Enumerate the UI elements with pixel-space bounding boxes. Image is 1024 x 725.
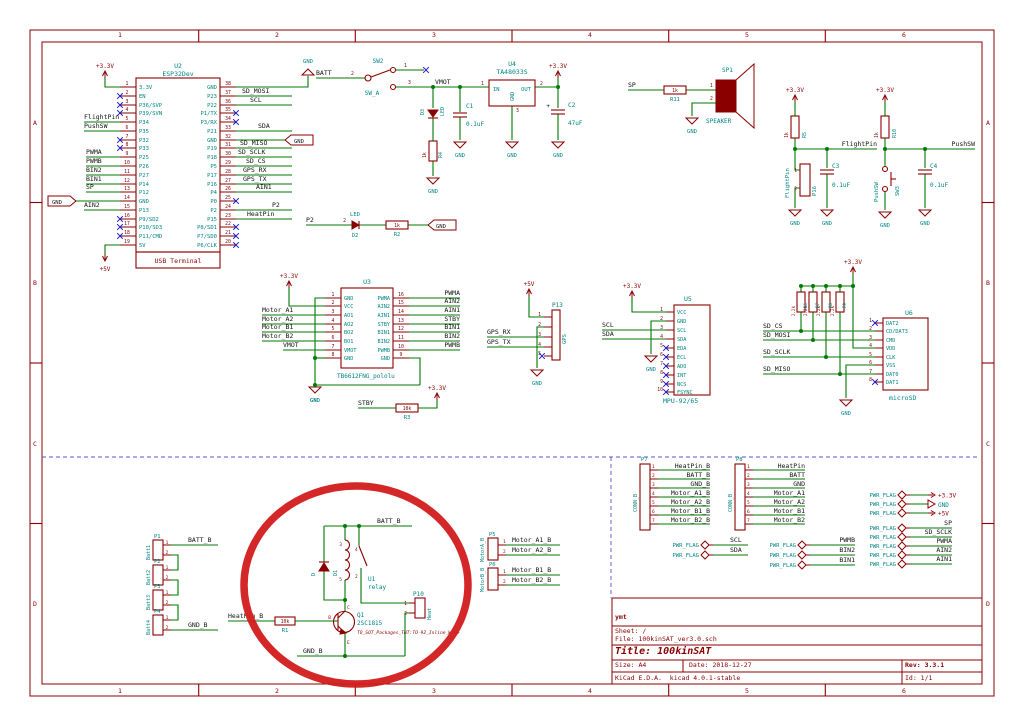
label-batt1: Batt1 — [146, 545, 152, 560]
label-1: 1 — [166, 615, 169, 621]
label-1: 1 — [538, 312, 541, 318]
label-pwr-flag: PWR_FLAG — [870, 526, 897, 532]
gnd-symbol-icon — [506, 142, 518, 148]
label-bo2: BO2 — [344, 330, 353, 336]
label-scl: SCL — [250, 96, 262, 104]
label-p35: P35 — [139, 129, 149, 135]
label-p17: P17 — [207, 173, 217, 179]
pwr-flag-icon — [898, 542, 906, 550]
label-gnd: GND — [207, 85, 217, 91]
label-bin2: BIN2 — [378, 339, 391, 345]
label-gnd: GND — [139, 199, 149, 205]
label-c: C — [986, 440, 990, 448]
label-speaker: SPEAKER — [706, 118, 732, 125]
wire — [795, 138, 800, 170]
label-p39-svn: P39/SVN — [139, 111, 162, 117]
label-p3-rx: P3/RX — [200, 120, 217, 126]
label-pushsw: PushSW — [84, 122, 108, 130]
gnd-symbol-icon — [879, 212, 891, 218]
label-mpu-92-65: MPU-92/65 — [663, 397, 698, 405]
label-35: 35 — [225, 107, 231, 113]
label-2: 2 — [343, 218, 346, 224]
label-14: 14 — [398, 309, 404, 315]
label-2: 2 — [660, 316, 663, 322]
label-vdd: VDD — [886, 346, 895, 352]
label-vmot: VMOT — [283, 341, 299, 349]
junction-dot — [824, 284, 828, 288]
label-1: 1 — [404, 63, 407, 69]
label-batt-b: BATT_B — [377, 517, 401, 525]
title-block-tool: KiCad E.D.A. kicad 4.0.1-stable — [615, 674, 740, 682]
label-b: B — [328, 615, 331, 621]
label-heatpin-b: HeatPin_B — [675, 462, 710, 470]
component-body — [552, 310, 560, 360]
component-body — [640, 464, 650, 530]
label-12: 12 — [124, 178, 130, 184]
label-sd-mosi: SD_MOSI — [763, 331, 790, 339]
label-ain2: AIN2 — [378, 304, 391, 310]
label-p15: P15 — [207, 217, 217, 223]
pwr-label: +3.3V — [876, 87, 894, 94]
label-p32: P32 — [139, 138, 149, 144]
label-led: LED — [440, 107, 446, 116]
label-27: 27 — [225, 178, 231, 184]
label-5v: 5V — [139, 243, 146, 249]
label-2: 2 — [503, 549, 506, 555]
component-body — [488, 568, 498, 590]
label-15: 15 — [398, 300, 404, 306]
gnd-symbol-icon — [919, 210, 931, 216]
label-ain1: AIN1 — [936, 555, 952, 563]
label-2: 2 — [404, 611, 407, 617]
label-4: 4 — [869, 343, 872, 349]
label-pwr-flag: PWR_FLAG — [673, 543, 700, 549]
label-4: 4 — [332, 318, 335, 324]
label-7: 7 — [126, 134, 129, 140]
label-motor-a1: Motor_A1 — [262, 306, 293, 314]
label-2: 2 — [540, 81, 543, 87]
label-sd-sclk: SD_SCLK — [238, 148, 265, 156]
label-a: A — [986, 119, 990, 127]
title-block-date: Date: 2018-12-27 — [689, 661, 752, 669]
label-c2: C2 — [568, 102, 576, 109]
gnd-symbol-label: GND — [822, 221, 832, 227]
label-1k: 1k — [672, 88, 678, 94]
label-11: 11 — [398, 335, 404, 341]
label-2: 2 — [538, 322, 541, 328]
pwr-label: +3.3V — [786, 87, 804, 94]
label-10k: 10k — [281, 619, 290, 625]
label-batt2: Batt2 — [146, 570, 152, 585]
label-d2: D2 — [352, 233, 359, 239]
symbol-outline — [302, 69, 314, 75]
diode-triangle — [319, 563, 329, 571]
label-sp: SP — [86, 183, 94, 191]
symbol-outline — [736, 64, 754, 128]
label-16: 16 — [124, 213, 130, 219]
symbol-circle — [883, 167, 888, 172]
label-14: 14 — [124, 195, 130, 201]
label-pushsw: PushSW — [952, 140, 976, 148]
pwr-flag-icon — [701, 541, 709, 549]
pwr-label: +5V — [100, 266, 111, 273]
label-flightpin: FlightPin — [84, 113, 119, 121]
label-3: 3 — [869, 335, 872, 341]
junction-dot — [343, 524, 347, 528]
label-2: 2 — [166, 550, 169, 556]
label-p13: P13 — [552, 302, 563, 309]
label-sd-sclk: SD_SCLK — [925, 528, 952, 536]
label-28: 28 — [225, 169, 231, 175]
title-block-title: Title: 100kinSAT — [615, 646, 711, 657]
label-sda: SDA — [602, 330, 614, 338]
label-0-1uf: 0.1uF — [466, 121, 484, 128]
label-motor-b2: Motor_B2 — [262, 332, 293, 340]
label-1k: 1k — [394, 223, 400, 229]
label-gnd: GND — [344, 356, 353, 362]
title-block-sheet: Sheet: / — [615, 627, 646, 635]
annotation-circle — [244, 486, 468, 684]
pwr-flag-icon — [898, 560, 906, 568]
label-gnd: GND — [344, 296, 353, 302]
label-p2: P2 — [306, 216, 314, 224]
label-motor-a2: Motor_A2 — [262, 315, 293, 323]
wire — [651, 321, 666, 354]
symbol-line — [359, 546, 367, 566]
label-d1: D1 — [333, 570, 339, 576]
label-heatpin: HeatPin — [247, 210, 274, 218]
label-stby: STBY — [358, 399, 374, 407]
label-eda: EDA — [677, 346, 687, 352]
label-gnd-b: GND_B — [303, 647, 323, 655]
label-bo1: BO1 — [344, 339, 353, 345]
label-gnd: GND — [938, 502, 949, 509]
label-sda: SDA — [730, 546, 742, 554]
gnd-symbol-icon — [789, 210, 801, 216]
label-2: 2 — [503, 579, 506, 585]
label-stby: STBY — [444, 315, 460, 323]
junction-dot — [556, 85, 560, 89]
label-22: 22 — [225, 221, 231, 227]
label-gps: GPS — [562, 334, 568, 344]
label-5: 5 — [869, 352, 872, 358]
schematic-canvas: GNDGNDGNDGNDGNDGNDGNDGNDGNDGNDGNDGNDGND+… — [0, 0, 1024, 725]
label-3-3v: 3.3V — [139, 85, 153, 91]
label-ain1: AIN1 — [444, 306, 460, 314]
label-p27: P27 — [139, 173, 149, 179]
label-clk: CLK — [886, 355, 896, 361]
label-11: 11 — [124, 169, 130, 175]
label-p36-svp: P36/SVP — [139, 103, 163, 109]
label-p10-sd3: P10/SD3 — [139, 225, 162, 231]
component-body — [800, 164, 810, 196]
label-2: 2 — [166, 575, 169, 581]
label-int: INT — [677, 373, 686, 379]
label-batt4: Batt4 — [146, 620, 152, 635]
label-p5: P5 — [489, 532, 496, 538]
component-body — [153, 540, 163, 560]
label-13: 13 — [398, 318, 404, 324]
label-bin2: BIN2 — [444, 332, 460, 340]
diode-triangle — [340, 629, 346, 634]
label-gnd: GND — [381, 356, 390, 362]
component-body — [153, 565, 163, 585]
gnd-symbol-icon — [454, 142, 466, 148]
label-31: 31 — [225, 142, 231, 148]
label-1: 1 — [332, 292, 335, 298]
label-gps-tx: GPS_TX — [243, 175, 267, 183]
label-37: 37 — [225, 90, 231, 96]
label-p26: P26 — [139, 164, 149, 170]
label-23: 23 — [225, 213, 231, 219]
label-motor-a2-b: Motor_A2_B — [671, 498, 710, 506]
label-p23: P23 — [207, 94, 217, 100]
gnd-symbol-icon — [821, 210, 833, 216]
label-c: C — [347, 605, 350, 611]
label-10: 10 — [124, 160, 130, 166]
label-d: D — [33, 600, 37, 608]
label-pwr-flag: PWR_FLAG — [770, 563, 797, 569]
speaker-body — [716, 80, 736, 112]
label-p4: P4 — [154, 609, 161, 615]
label-r7: R7 — [815, 302, 820, 308]
label-5: 5 — [126, 116, 129, 122]
label-gps-rx: GPS_RX — [487, 328, 511, 336]
label-vcc: VCC — [344, 304, 353, 310]
label-20: 20 — [225, 239, 231, 245]
label-pwr-flag: PWR_FLAG — [870, 544, 897, 550]
label-ao2: AO2 — [344, 322, 353, 328]
wire — [418, 400, 437, 408]
label-2: 2 — [355, 574, 358, 580]
label-led: LED — [350, 212, 360, 218]
label-gnd: GND — [303, 59, 313, 65]
label-r4: R4 — [438, 152, 444, 158]
gnd-symbol-icon — [309, 387, 321, 393]
label-pwr-flag: PWR_FLAG — [770, 553, 797, 559]
title-block-file: File: 100kinSAT_ver3.0.sch — [615, 635, 717, 643]
label-21: 21 — [225, 230, 231, 236]
label-pwmb: PWMB — [839, 536, 855, 544]
label-gnd: GND — [207, 138, 217, 144]
gnd-symbol-label: GND — [532, 381, 542, 387]
wire — [171, 580, 178, 595]
label-vmot: VMOT — [344, 348, 357, 354]
diode-triangle — [428, 110, 438, 117]
label-r6: R6 — [803, 302, 808, 308]
component-body — [836, 292, 844, 312]
label-motor-b1: Motor_B1 — [262, 323, 293, 331]
label-motorb-b: MotorB_B — [480, 568, 486, 592]
label-p19: P19 — [207, 146, 217, 152]
label-sd-cs: SD_CS — [246, 157, 266, 165]
label-motor-b1-b: Motor_B1_B — [512, 566, 551, 574]
label-gps-rx: GPS_RX — [243, 166, 267, 174]
label-4: 4 — [126, 107, 129, 113]
gnd-symbol-label: GND — [841, 411, 851, 417]
label-motor-a1-b: Motor_A1_B — [671, 489, 710, 497]
label-2: 2 — [126, 90, 129, 96]
label-p33: P33 — [139, 146, 149, 152]
label-heat: Heat — [427, 608, 433, 620]
label-15: 15 — [124, 204, 130, 210]
junction-dot — [343, 598, 347, 602]
junction-dot — [825, 147, 829, 151]
label-1k: 1k — [422, 152, 428, 158]
label-3: 3 — [538, 332, 541, 338]
label-pwma: PWMA — [936, 537, 952, 545]
label-1: 1 — [794, 168, 797, 174]
label-2: 2 — [869, 326, 872, 332]
gnd-symbol-icon — [645, 356, 657, 362]
label-10: 10 — [657, 387, 663, 393]
label-p5: P5 — [210, 164, 217, 170]
label-conn-b: CONN_B — [728, 494, 734, 512]
label-in: IN — [493, 87, 500, 93]
label-vmot: VMOT — [435, 78, 451, 86]
label-5: 5 — [652, 500, 655, 506]
label-17: 17 — [124, 221, 130, 227]
label-1: 1 — [166, 590, 169, 596]
label-8: 8 — [332, 352, 335, 358]
gnd-symbol-label: GND — [507, 153, 517, 159]
label-p6-clk: P6/CLK — [197, 243, 218, 249]
label-7: 7 — [652, 518, 655, 524]
label-a: A — [33, 119, 37, 127]
label-e: E — [347, 640, 350, 646]
label-esp32dev: ESP32Dev — [162, 70, 193, 78]
label-motora-b: MotorA_B — [480, 538, 486, 562]
gnd-symbol-label: GND — [790, 221, 800, 227]
label-2-2k: 2.2k — [791, 305, 796, 316]
label-gnd: GND — [310, 398, 320, 404]
label-1: 1 — [404, 601, 407, 607]
label-en: EN — [139, 94, 146, 100]
label-u4: U4 — [508, 60, 516, 68]
label-1: 1 — [126, 81, 129, 87]
label-usb-terminal: USB Terminal — [155, 257, 202, 265]
label-sd-miso: SD_MISO — [240, 139, 267, 147]
label-scl: SCL — [677, 328, 686, 334]
junction-dot — [357, 524, 361, 528]
label-4: 4 — [355, 547, 358, 553]
label-5: 5 — [332, 326, 335, 332]
label-motor-a2: Motor_A2 — [774, 498, 805, 506]
symbol-outline — [928, 500, 935, 508]
label-q1: Q1 — [357, 612, 365, 619]
label-p2: P2 — [272, 201, 280, 209]
label-r10: R10 — [892, 129, 898, 138]
label-relay: relay — [368, 584, 386, 591]
label-3: 3 — [432, 31, 436, 39]
label-1: 1 — [869, 318, 872, 324]
label-p8: P8 — [736, 457, 743, 463]
label-flightpin: FlightPin — [785, 168, 791, 198]
label-c: C — [33, 440, 37, 448]
label-fsync: FSYNC — [677, 390, 693, 396]
label-pwr-flag: PWR_FLAG — [673, 553, 700, 559]
label-r5: R5 — [802, 132, 808, 138]
label-9: 9 — [400, 352, 403, 358]
label-d3: D3 — [420, 109, 426, 115]
label-cmd: CMD — [886, 338, 895, 344]
label-2: 2 — [351, 71, 354, 77]
label-0-1uf: 0.1uF — [930, 182, 948, 189]
junction-dot — [799, 329, 803, 333]
label-batt-b: BATT_B — [687, 471, 711, 479]
label-2: 2 — [747, 473, 750, 479]
label-u6: U6 — [905, 309, 913, 317]
relay-coil — [345, 540, 350, 580]
component-body — [488, 538, 498, 560]
component-body — [153, 615, 163, 635]
component-body — [415, 598, 425, 618]
label-25: 25 — [225, 195, 231, 201]
gnd-symbol-label: GND — [646, 367, 656, 373]
junction-dot — [838, 372, 842, 376]
label-r8: R8 — [828, 302, 833, 308]
label-36: 36 — [225, 99, 231, 105]
label-sw-a: SW_A — [365, 90, 380, 97]
label-7: 7 — [332, 344, 335, 350]
gnd-symbol-icon — [840, 400, 852, 406]
pwr-flag-icon — [898, 500, 906, 508]
label-1k: 1k — [784, 132, 790, 138]
label-gnd-b: GND_B — [690, 480, 710, 488]
label-4: 4 — [588, 687, 592, 695]
pwr-label: +5V — [524, 281, 535, 288]
label-4: 4 — [588, 31, 592, 39]
label-scl: SCL — [730, 536, 742, 544]
label-5: 5 — [339, 577, 342, 583]
label-conn-b: CONN_B — [633, 494, 639, 512]
label-9: 9 — [660, 379, 663, 385]
junction-dot — [883, 147, 887, 151]
label-5: 5 — [538, 351, 541, 357]
label-sd-cs: SD_CS — [763, 322, 783, 330]
label-34: 34 — [225, 116, 231, 122]
label-cd-dat3: CD/DAT3 — [886, 329, 908, 335]
component-body — [153, 590, 163, 610]
label-ado: ADO — [677, 364, 686, 370]
label-1: 1 — [503, 539, 506, 545]
label-3: 3 — [339, 542, 342, 548]
label-1: 1 — [660, 307, 663, 313]
label-gnd: GND — [294, 139, 304, 145]
wire — [692, 103, 716, 116]
label-vcc: VCC — [677, 310, 686, 316]
label-gnd: GND — [436, 224, 446, 230]
label-pwr-flag: PWR_FLAG — [770, 543, 797, 549]
label-sda: SDA — [258, 122, 270, 130]
label-vss: VSS — [886, 363, 895, 369]
label-pwmb: PWMB — [86, 157, 102, 165]
label-2sc1815: 2SC1815 — [357, 620, 383, 627]
component-body — [791, 116, 799, 138]
label-p21: P21 — [207, 129, 217, 135]
label-29: 29 — [225, 160, 231, 166]
wire — [105, 78, 120, 87]
gnd-symbol-icon — [686, 118, 698, 124]
label-p7: P7 — [641, 457, 648, 463]
label-bin1: BIN1 — [86, 175, 102, 183]
symbol-circle — [391, 85, 396, 90]
label-motor-b1-b: Motor_B1_B — [671, 507, 710, 515]
label-16: 16 — [398, 292, 404, 298]
label-sd-sclk: SD_SCLK — [763, 348, 790, 356]
pwr-label: +3.3V — [96, 63, 114, 70]
label-sd-miso: SD_MISO — [763, 365, 790, 373]
